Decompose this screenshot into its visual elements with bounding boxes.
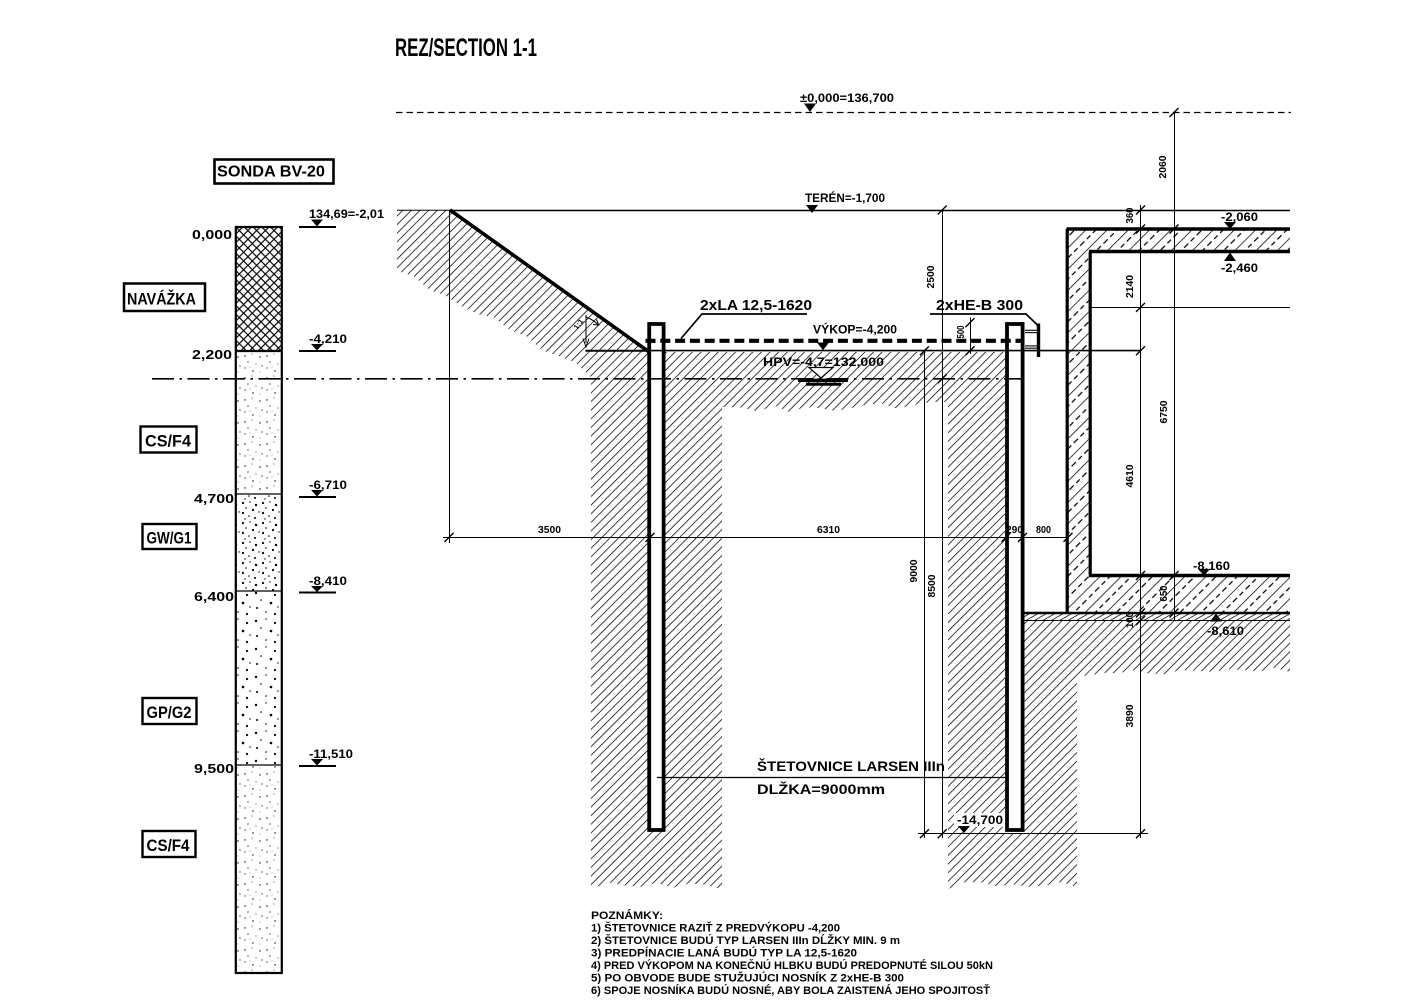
svg-text:3) PREDPÍNACIE LANÁ BUDÚ TYP L: 3) PREDPÍNACIE LANÁ BUDÚ TYP LA 12,5-162…	[591, 947, 857, 960]
svg-text:-2,460: -2,460	[1221, 263, 1258, 275]
svg-text:DLŽKA=9000mm: DLŽKA=9000mm	[757, 780, 885, 797]
svg-text:4,700: 4,700	[194, 492, 234, 506]
svg-text:2060: 2060	[1158, 155, 1169, 178]
svg-text:4) PRED VÝKOPOM NA KONEČNÚ HLB: 4) PRED VÝKOPOM NA KONEČNÚ HLBKU BUDÚ PR…	[591, 959, 993, 972]
svg-text:POZNÁMKY:: POZNÁMKY:	[591, 909, 663, 922]
svg-text:SONDA BV-20: SONDA BV-20	[217, 164, 325, 181]
svg-text:±0,000=136,700: ±0,000=136,700	[800, 93, 894, 105]
svg-text:2140: 2140	[1125, 275, 1136, 298]
svg-text:3500: 3500	[538, 524, 561, 536]
svg-text:GP/G2: GP/G2	[147, 704, 192, 722]
svg-text:8500: 8500	[927, 574, 938, 597]
svg-text:-14,700: -14,700	[957, 815, 1003, 827]
svg-text:9,500: 9,500	[194, 762, 234, 776]
svg-text:GW/G1: GW/G1	[147, 530, 192, 548]
svg-text:650: 650	[1159, 585, 1170, 601]
svg-text:290: 290	[1006, 524, 1023, 536]
svg-text:6,400: 6,400	[194, 590, 234, 604]
svg-text:2xHE-B 300: 2xHE-B 300	[936, 298, 1023, 314]
svg-text:2500: 2500	[926, 265, 937, 288]
svg-text:CS/F4: CS/F4	[145, 433, 192, 451]
svg-text:1) ŠTETOVNICE RAZIŤ Z PREDVÝKO: 1) ŠTETOVNICE RAZIŤ Z PREDVÝKOPU -4,200	[591, 922, 840, 935]
svg-text:4610: 4610	[1125, 464, 1136, 487]
svg-text:0,000: 0,000	[192, 228, 232, 242]
svg-text:2,200: 2,200	[192, 348, 232, 362]
svg-text:2) ŠTETOVNICE BUDÚ TYP LARSEN: 2) ŠTETOVNICE BUDÚ TYP LARSEN IIIn DĹŽKY…	[591, 934, 900, 947]
svg-text:134,69=-2,01: 134,69=-2,01	[309, 209, 385, 221]
svg-text:9000: 9000	[909, 559, 920, 582]
svg-text:5) PO OBVODE BUDE STUŽUJÚCI NO: 5) PO OBVODE BUDE STUŽUJÚCI NOSNÍK Z 2xH…	[591, 972, 904, 985]
svg-text:3890: 3890	[1125, 704, 1136, 727]
svg-text:6750: 6750	[1159, 400, 1170, 423]
svg-text:360: 360	[1125, 207, 1136, 223]
svg-text:100: 100	[1125, 612, 1136, 628]
svg-text:REZ/SECTION 1-1: REZ/SECTION 1-1	[395, 34, 537, 62]
svg-text:2xLA 12,5-1620: 2xLA 12,5-1620	[700, 298, 812, 314]
svg-text:ŠTETOVNICE LARSEN IIIn: ŠTETOVNICE LARSEN IIIn	[757, 757, 945, 774]
svg-text:-8,160: -8,160	[1193, 561, 1230, 573]
svg-text:VÝKOP=-4,200: VÝKOP=-4,200	[813, 324, 897, 337]
svg-text:500: 500	[956, 325, 967, 338]
svg-text:-8,610: -8,610	[1207, 626, 1244, 638]
svg-text:6310: 6310	[817, 524, 840, 536]
svg-text:NAVÁŽKA: NAVÁŽKA	[127, 290, 196, 309]
svg-text:6) SPOJE NOSNÍKA BUDÚ NOSNÉ, A: 6) SPOJE NOSNÍKA BUDÚ NOSNÉ, ABY BOLA ZA…	[591, 984, 990, 997]
svg-text:TERÉN=-1,700: TERÉN=-1,700	[805, 192, 885, 205]
svg-text:CS/F4: CS/F4	[147, 837, 191, 855]
svg-text:800: 800	[1036, 524, 1051, 536]
